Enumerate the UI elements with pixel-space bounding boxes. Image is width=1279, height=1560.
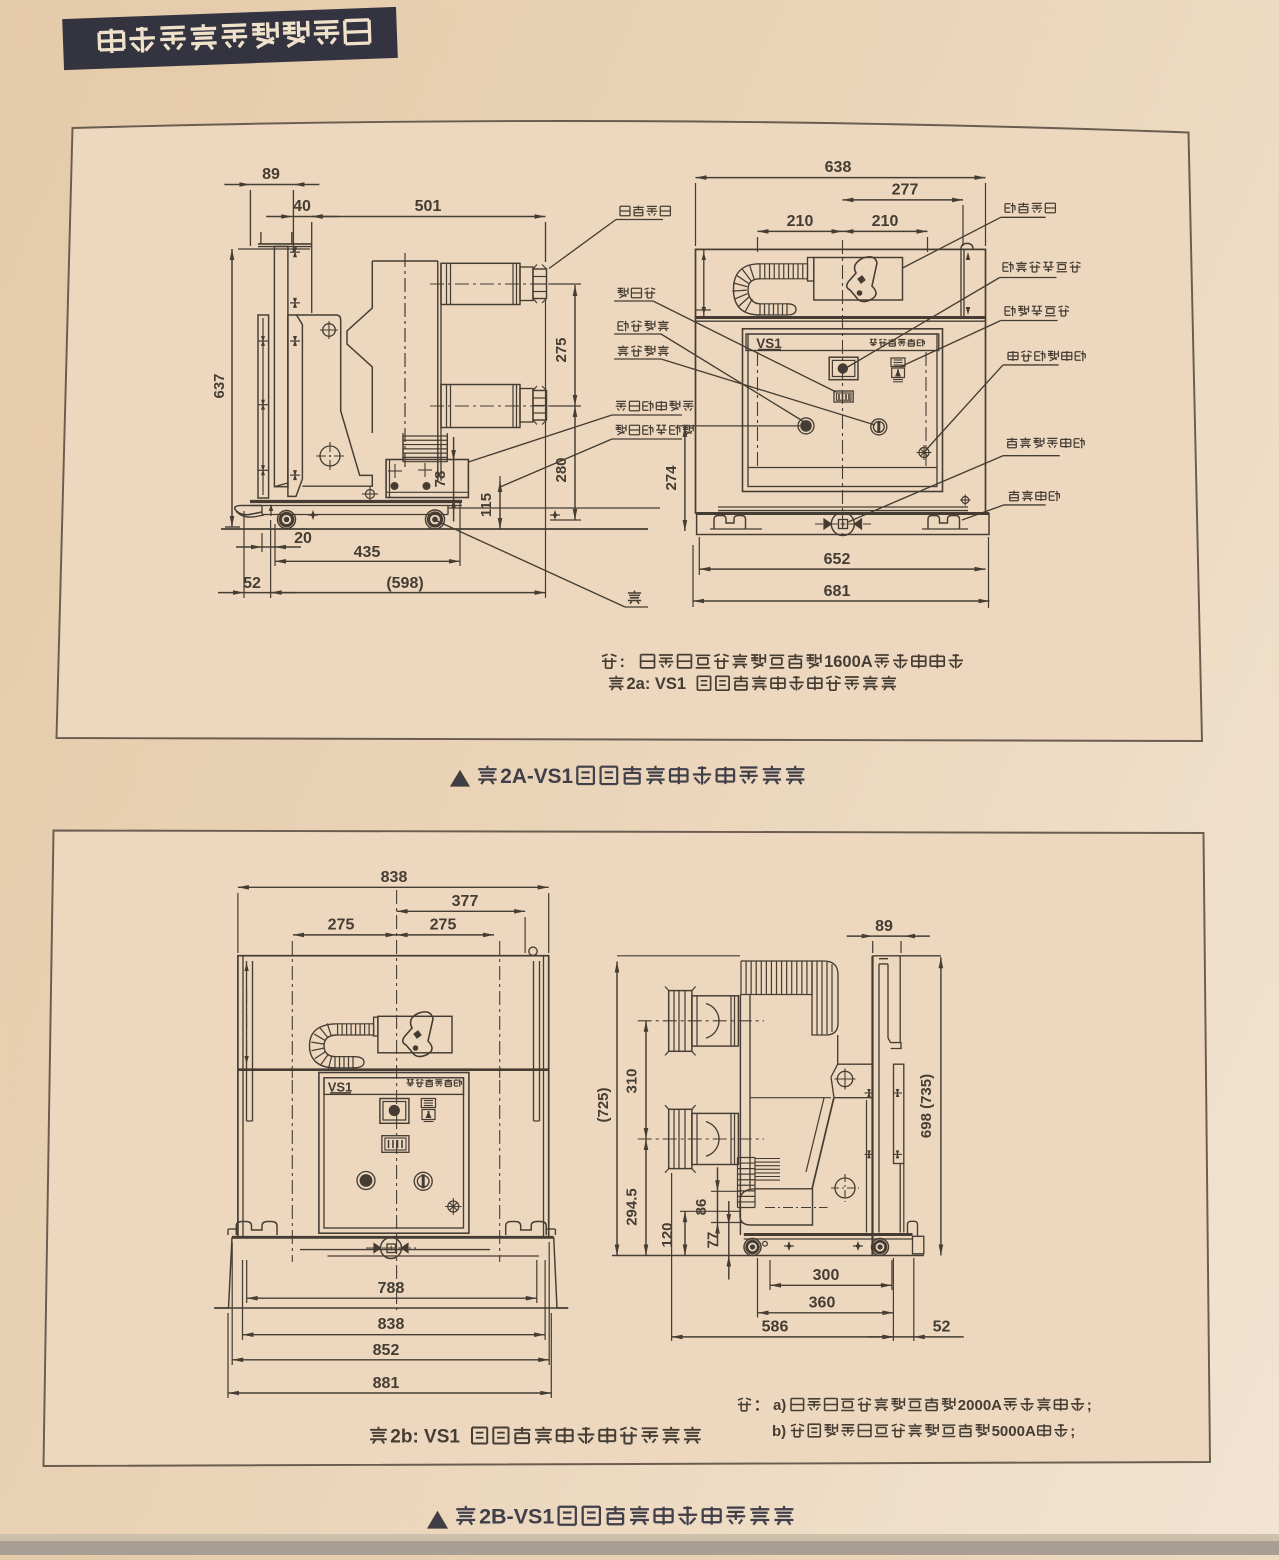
svg-text:VS1: VS1 <box>756 336 782 351</box>
svg-text:89: 89 <box>262 166 280 183</box>
svg-text:;: ; <box>1087 1397 1092 1414</box>
svg-text:b): b) <box>772 1423 786 1440</box>
svg-text:275: 275 <box>553 337 570 362</box>
svg-text:300: 300 <box>813 1267 840 1284</box>
svg-text:586: 586 <box>762 1319 789 1336</box>
svg-text:310: 310 <box>624 1068 641 1093</box>
svg-text::: : <box>619 653 625 671</box>
svg-text:2b: VS1: 2b: VS1 <box>390 1426 460 1447</box>
svg-text:52: 52 <box>243 575 261 592</box>
svg-text:210: 210 <box>872 213 899 230</box>
svg-text:881: 881 <box>373 1375 400 1392</box>
svg-text:274: 274 <box>663 465 680 491</box>
svg-text:2000A: 2000A <box>958 1397 1002 1414</box>
svg-text:89: 89 <box>875 918 893 935</box>
svg-text:638: 638 <box>825 159 852 176</box>
svg-text:838: 838 <box>378 1316 405 1333</box>
svg-text:838: 838 <box>381 869 408 886</box>
svg-text:(598): (598) <box>386 575 423 592</box>
svg-text:681: 681 <box>824 583 851 600</box>
svg-text:;: ; <box>1070 1423 1075 1440</box>
svg-text:115: 115 <box>478 493 495 517</box>
svg-text:86: 86 <box>693 1199 710 1216</box>
svg-text:40: 40 <box>293 198 311 215</box>
svg-text:(725): (725) <box>595 1087 612 1122</box>
svg-text:435: 435 <box>354 544 381 561</box>
svg-text:275: 275 <box>328 917 355 934</box>
svg-text:78: 78 <box>432 471 449 488</box>
svg-text:120: 120 <box>659 1222 676 1247</box>
svg-text:788: 788 <box>378 1280 405 1297</box>
svg-text:1600A: 1600A <box>824 653 873 671</box>
svg-text:360: 360 <box>809 1295 836 1312</box>
svg-text:377: 377 <box>452 893 479 910</box>
svg-text:2A-VS1: 2A-VS1 <box>500 765 573 788</box>
svg-text:277: 277 <box>892 182 919 199</box>
svg-text:210: 210 <box>787 213 814 230</box>
svg-text:77: 77 <box>705 1232 722 1249</box>
svg-text:501: 501 <box>415 198 442 215</box>
svg-text:852: 852 <box>373 1342 400 1359</box>
svg-text:5000A: 5000A <box>992 1423 1036 1440</box>
svg-text:637: 637 <box>211 373 228 398</box>
svg-text:52: 52 <box>933 1319 951 1336</box>
svg-text:2B-VS1: 2B-VS1 <box>479 1504 554 1528</box>
svg-text:698 (735): 698 (735) <box>918 1074 935 1138</box>
svg-text:275: 275 <box>430 917 457 934</box>
svg-text:20: 20 <box>294 530 312 547</box>
svg-text:652: 652 <box>824 551 851 568</box>
svg-text:2a: VS1: 2a: VS1 <box>626 675 686 693</box>
svg-text:294.5: 294.5 <box>624 1188 641 1226</box>
svg-text:： a): ： a) <box>754 1397 787 1414</box>
